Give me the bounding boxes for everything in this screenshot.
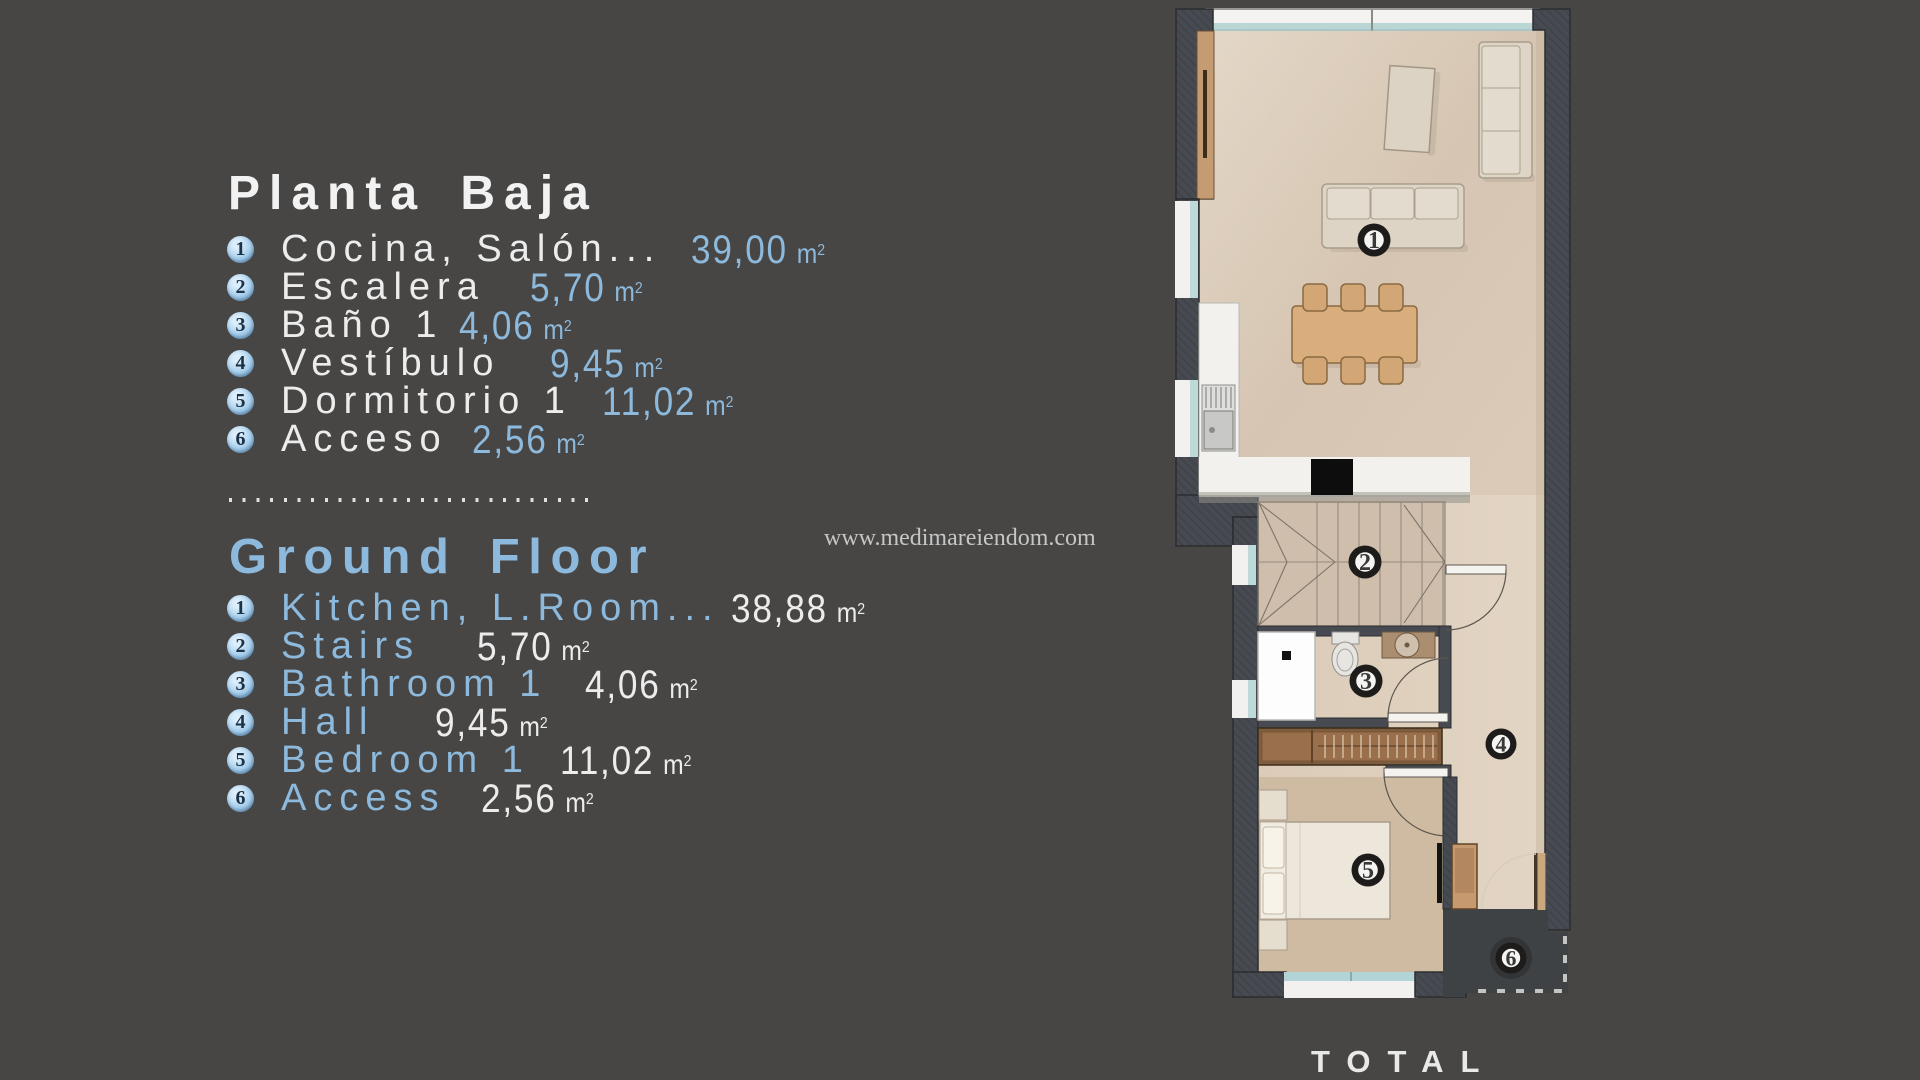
svg-text:1: 1 [1368, 228, 1380, 254]
svg-text:6: 6 [1506, 946, 1517, 971]
svg-text:4: 4 [1496, 732, 1507, 757]
svg-text:2: 2 [1359, 550, 1371, 576]
svg-text:5: 5 [1362, 858, 1374, 884]
svg-text:3: 3 [1360, 669, 1372, 695]
